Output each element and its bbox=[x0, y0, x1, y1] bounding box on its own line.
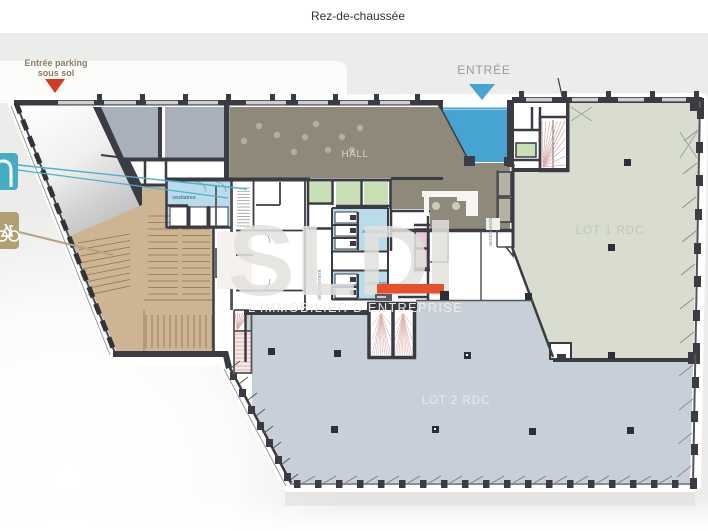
svg-text:vestiaires: vestiaires bbox=[172, 195, 195, 201]
svg-text:Rez-de-chaussée: Rez-de-chaussée bbox=[311, 9, 405, 23]
svg-text:LOT 2 RDC: LOT 2 RDC bbox=[422, 395, 491, 407]
svg-text:Entrée parking: Entrée parking bbox=[24, 58, 87, 68]
svg-text:L’IMMOBILIER D’ENTREPRISE: L’IMMOBILIER D’ENTREPRISE bbox=[248, 300, 463, 315]
svg-text:ascenseurs: ascenseurs bbox=[488, 218, 494, 246]
svg-text:HALL: HALL bbox=[341, 149, 368, 160]
svg-text:ENTRÉE: ENTRÉE bbox=[457, 62, 510, 77]
svg-text:LOT 1 RDC: LOT 1 RDC bbox=[576, 225, 645, 237]
svg-text:sous sol: sous sol bbox=[38, 68, 75, 78]
